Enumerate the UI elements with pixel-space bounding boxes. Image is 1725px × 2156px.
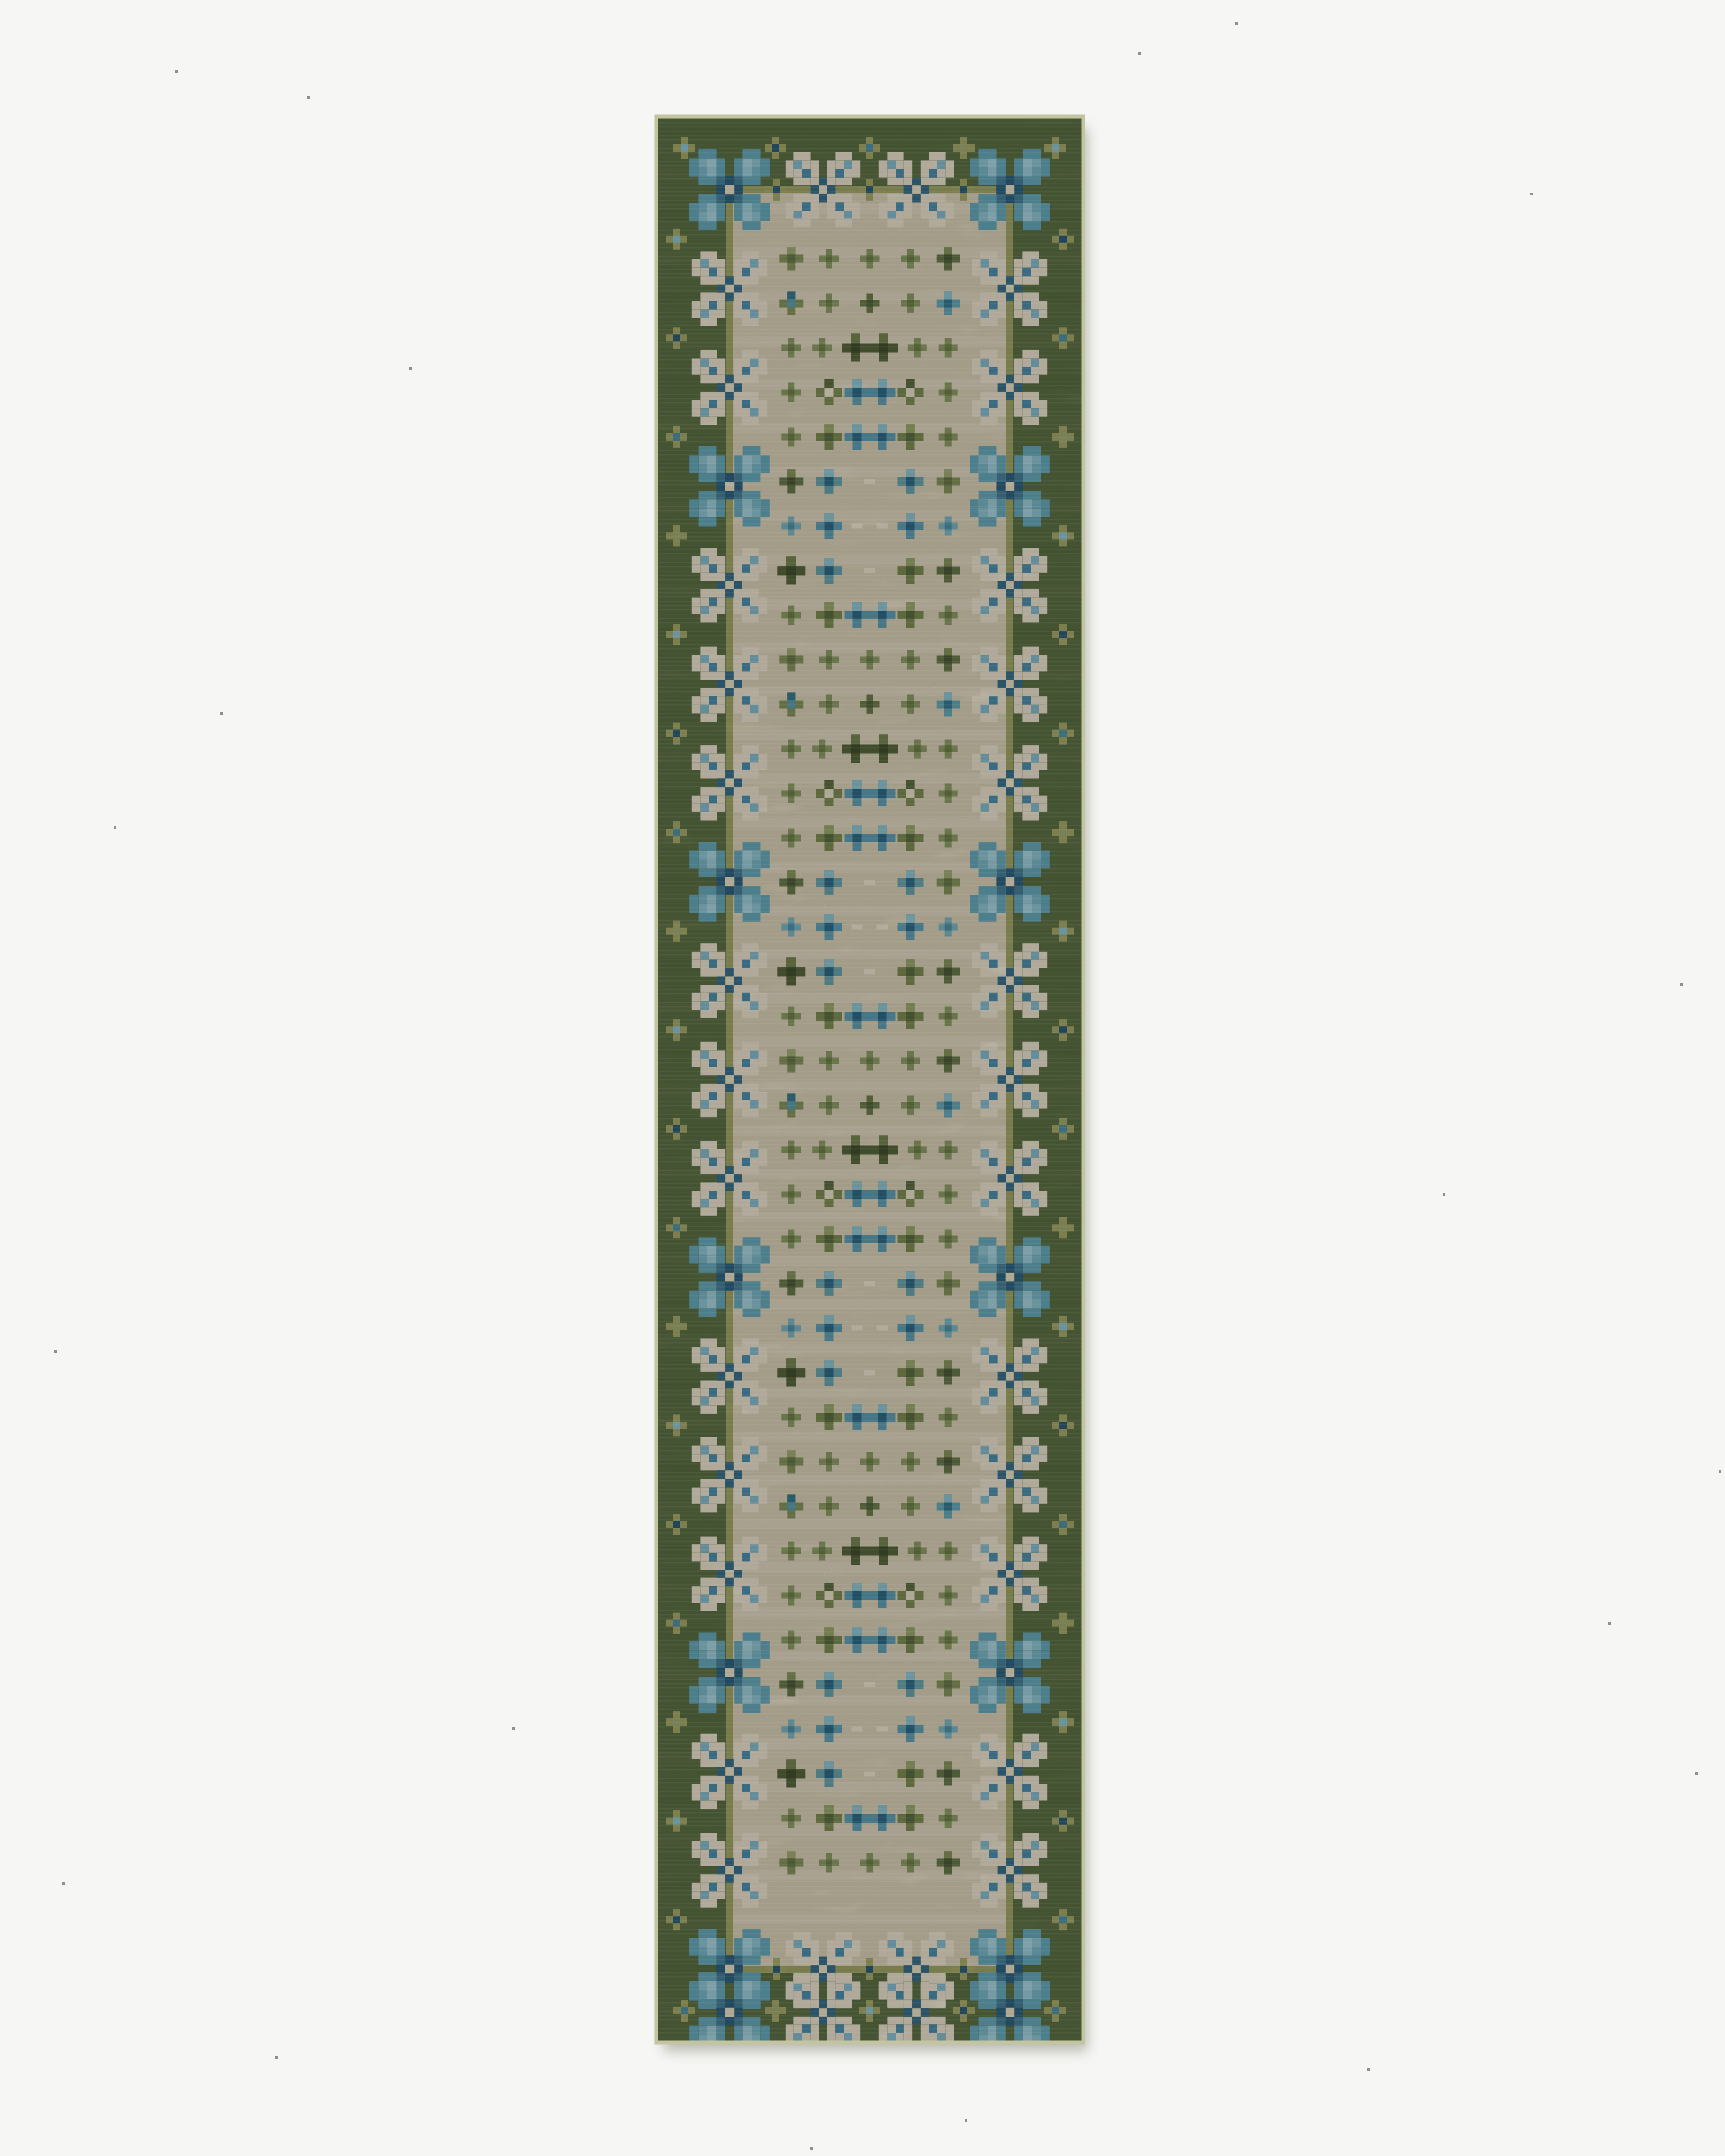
rug-runner-product-photo <box>0 0 1725 2156</box>
product-photo-stage <box>0 0 1725 2156</box>
